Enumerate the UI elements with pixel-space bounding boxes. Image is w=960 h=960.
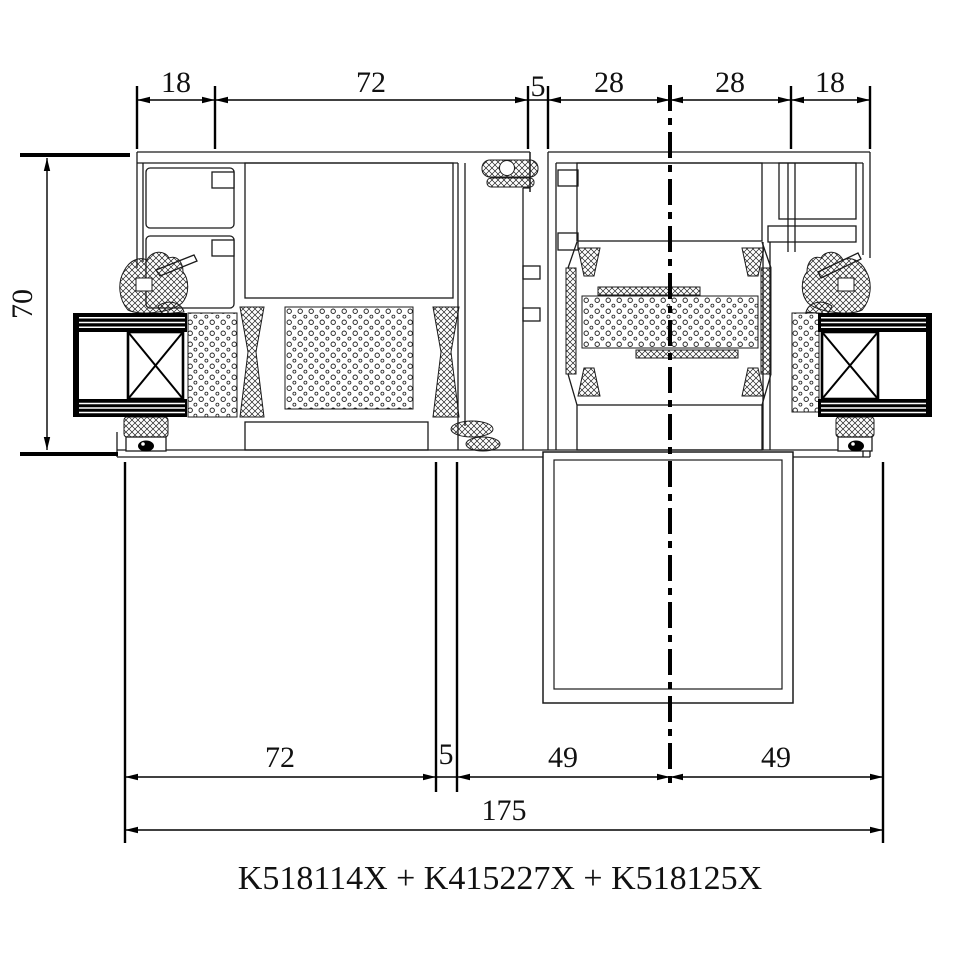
left-sash-top-wall: [137, 152, 530, 192]
brush-seal-base: [487, 178, 534, 187]
left-sash-bottom-chamber: [245, 422, 428, 450]
polyamide-side-left: [566, 268, 576, 374]
arrowhead: [137, 97, 150, 103]
interlock-gasket-upper: [451, 421, 493, 437]
arrowhead: [548, 97, 561, 103]
bubble-gasket-left: [138, 441, 154, 452]
arrowhead: [778, 97, 791, 103]
left-sash-outer-wall: [137, 152, 143, 268]
arrowhead: [44, 437, 50, 450]
arrowhead: [423, 774, 436, 780]
corner-gasket-tl: [578, 248, 600, 276]
arrowhead: [44, 158, 50, 171]
polyamide-side-right: [761, 268, 771, 374]
dim-label-bottom-5: 5: [439, 738, 454, 771]
glass-edge-right: [926, 313, 932, 417]
polyamide-rail-top: [598, 287, 700, 295]
dim-label-top-72: 72: [356, 66, 386, 99]
glazing-foam-left: [188, 313, 237, 417]
glazing-gasket-bottom-left: [124, 417, 168, 437]
glass-edge-left: [73, 313, 79, 417]
dim-label-bottom-49b: 49: [761, 741, 791, 774]
dim-label-top-18b: 18: [815, 66, 845, 99]
top-dimension-line: 18 72 5 28 28 18: [137, 66, 870, 149]
cad-drawing-page: 18 72 5 28 28 18 70 72 5 49 49 175 K51: [0, 0, 960, 960]
corner-gasket-bl: [578, 368, 600, 396]
glazing-unit-left: [73, 313, 187, 417]
hardware-groove-upper: [212, 172, 234, 188]
dim-label-bottom-72: 72: [265, 741, 295, 774]
interlock-notch-upper: [523, 266, 540, 279]
glazing-foam-right: [792, 313, 819, 412]
dim-label-top-5: 5: [531, 70, 546, 103]
gasket-core-hole-right: [838, 278, 854, 291]
dim-label-bottom-49a: 49: [548, 741, 578, 774]
arrowhead: [870, 827, 883, 833]
polyamide-strip-left: [240, 307, 264, 417]
right-corner-chamber-band: [768, 226, 856, 242]
polyamide-strip-right: [433, 307, 459, 417]
bubble-highlight-right: [851, 442, 855, 446]
glazing-gasket-bottom-right: [836, 417, 874, 437]
dim-label-top-28b: 28: [715, 66, 745, 99]
arrowhead: [125, 827, 138, 833]
arrowhead: [202, 97, 215, 103]
hardware-groove-lower: [212, 240, 234, 256]
gasket-core-hole-left: [136, 278, 152, 291]
interlock-notch-lower: [523, 308, 540, 321]
profile-codes-caption: K518114X + K415227X + K518125X: [238, 860, 762, 897]
bubble-gasket-right: [848, 441, 864, 452]
dim-label-top-18a: 18: [161, 66, 191, 99]
arrowhead: [870, 774, 883, 780]
profile-section-drawing: 18 72 5 28 28 18 70 72 5 49 49 175 K51: [0, 0, 960, 960]
arrowhead: [125, 774, 138, 780]
bubble-highlight-left: [141, 442, 145, 446]
dim-label-total-175: 175: [482, 794, 527, 827]
glazing-unit-right: [818, 313, 932, 417]
arrowhead: [457, 774, 470, 780]
arrowhead: [791, 97, 804, 103]
dim-label-top-28a: 28: [594, 66, 624, 99]
right-corner-chamber: [779, 163, 856, 219]
arrowhead: [215, 97, 228, 103]
insulation-foam-block: [285, 307, 413, 409]
arrowhead: [515, 97, 528, 103]
dim-label-height-70: 70: [6, 289, 39, 319]
brush-seal-core: [500, 161, 515, 176]
glazing-gasket-top-right: [802, 252, 870, 314]
interlock-walls: [458, 152, 530, 450]
interlock-gasket-lower: [466, 437, 500, 451]
left-sash-main-chamber: [245, 163, 453, 298]
arrowhead: [857, 97, 870, 103]
right-groove-upper: [558, 170, 578, 186]
polyamide-rail-bottom: [636, 350, 738, 358]
interlock-profile: [451, 152, 540, 451]
